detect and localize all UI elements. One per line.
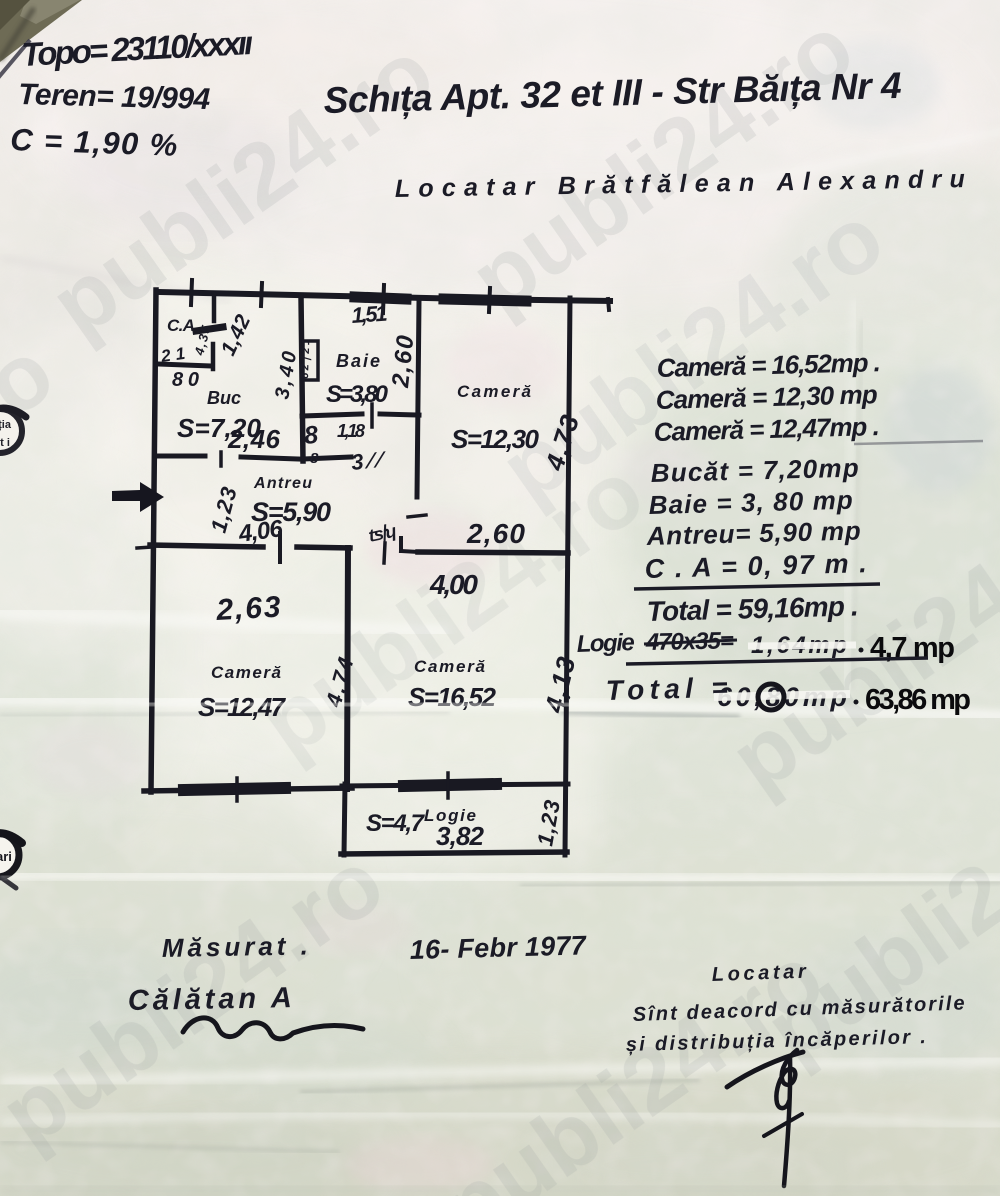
- svg-text:1,51: 1,51: [351, 301, 389, 328]
- svg-text:2,60: 2,60: [387, 333, 419, 389]
- svg-text:C = 1,90 %: C = 1,90 %: [10, 122, 178, 163]
- svg-text:Teren= 19/994: Teren= 19/994: [18, 78, 211, 116]
- svg-text:C . A = 0, 97 m .: C . A = 0, 97 m .: [644, 548, 867, 584]
- svg-text:Buc: Buc: [207, 388, 241, 408]
- svg-text:2,46: 2,46: [227, 424, 281, 454]
- svg-text:2,60: 2,60: [466, 518, 525, 549]
- svg-text:Baie = 3, 80 mp: Baie = 3, 80 mp: [648, 485, 853, 520]
- svg-text:63,86 mp: 63,86 mp: [865, 684, 971, 716]
- svg-text:ația: ația: [0, 419, 12, 431]
- svg-text:Cameră = 12,47mp .: Cameră = 12,47mp .: [653, 411, 880, 447]
- svg-text:Baie: Baie: [336, 351, 380, 371]
- svg-text:st i: st i: [0, 437, 10, 449]
- svg-text:62∣21: 62∣21: [299, 339, 312, 379]
- svg-text:Cameră = 12,30 mp: Cameră = 12,30 mp: [655, 379, 878, 415]
- svg-text:S=12,30: S=12,30: [451, 424, 540, 454]
- svg-text:Total = 59,16mp .: Total = 59,16mp .: [646, 590, 859, 627]
- svg-text:Cameră: Cameră: [211, 663, 282, 682]
- svg-text:3,82: 3,82: [436, 821, 485, 851]
- svg-text:Antreu: Antreu: [253, 475, 312, 492]
- svg-text:8: 8: [310, 450, 319, 467]
- svg-text:ari: ari: [0, 849, 12, 864]
- svg-text:S=4,7: S=4,7: [366, 810, 426, 837]
- svg-text:2,63: 2,63: [215, 591, 282, 627]
- svg-text:C.A: C.A: [167, 316, 195, 335]
- svg-text:S=3,80: S=3,80: [326, 381, 389, 408]
- svg-text:1,18: 1,18: [337, 421, 365, 441]
- svg-text:16- Febr 1977: 16- Febr 1977: [409, 930, 588, 965]
- svg-text:4,00: 4,00: [429, 569, 478, 600]
- svg-text:Cameră: Cameră: [414, 657, 486, 676]
- svg-text:Bucăt = 7,20mp: Bucăt = 7,20mp: [650, 453, 859, 488]
- svg-text:Logie: Logie: [576, 629, 635, 658]
- svg-text:Cameră = 16,52mp .: Cameră = 16,52mp .: [656, 347, 881, 383]
- svg-text:Antreu= 5,90 mp: Antreu= 5,90 mp: [645, 515, 861, 551]
